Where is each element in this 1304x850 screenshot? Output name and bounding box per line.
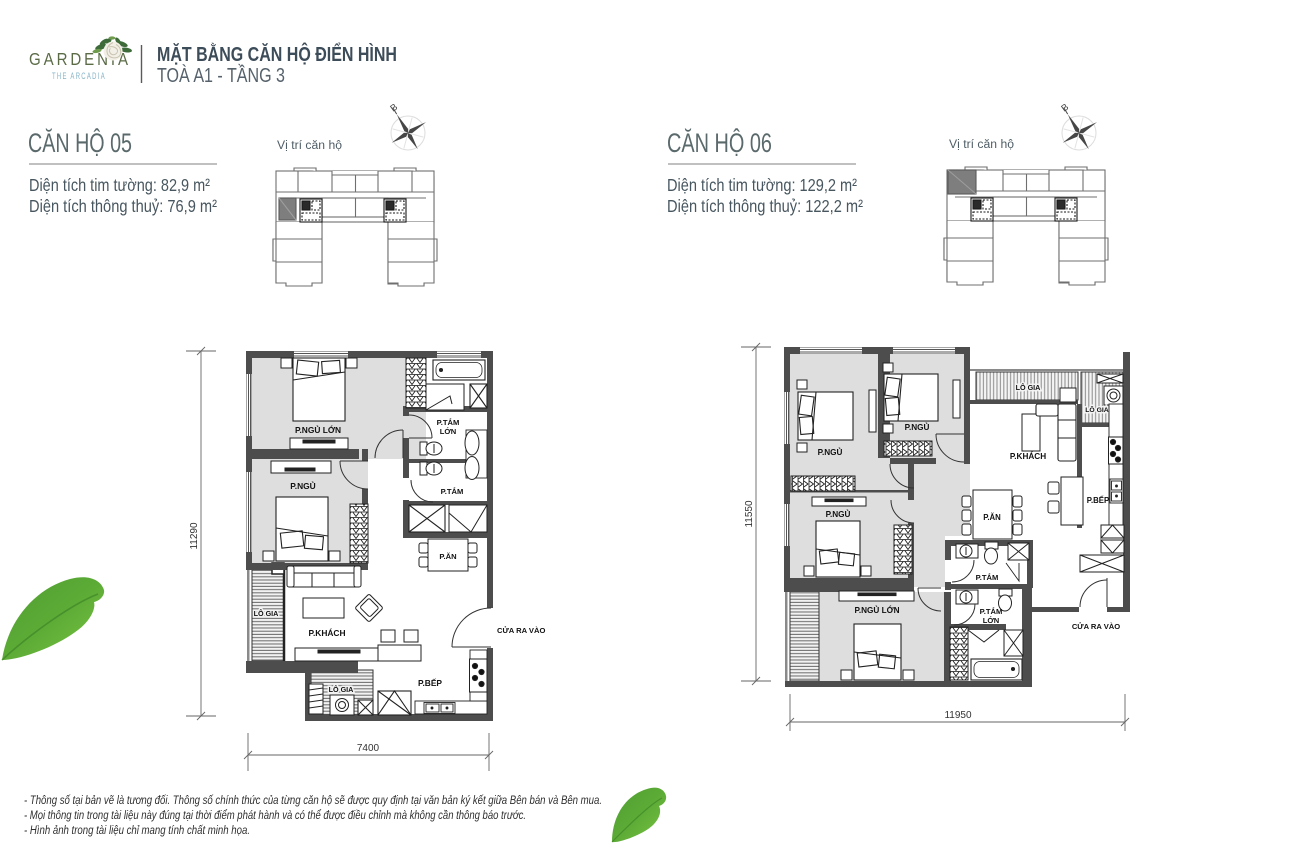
svg-text:P.NGỦ: P.NGỦ	[290, 480, 315, 491]
svg-text:Diện tích thông thuỷ: 122,2 m²: Diện tích thông thuỷ: 122,2 m²	[667, 196, 863, 216]
svg-text:11550: 11550	[744, 500, 755, 528]
svg-text:LÔ GIA: LÔ GIA	[1085, 405, 1109, 414]
svg-text:LỚN: LỚN	[440, 427, 457, 436]
svg-text:LÔ GIA: LÔ GIA	[329, 685, 354, 694]
svg-text:P.TẮM: P.TẮM	[976, 573, 999, 582]
svg-text:CỬA RA VÀO: CỬA RA VÀO	[497, 626, 545, 635]
svg-text:P.KHÁCH: P.KHÁCH	[308, 627, 345, 638]
svg-text:P.KHÁCH: P.KHÁCH	[1010, 451, 1046, 461]
svg-text:P.TẮM: P.TẮM	[437, 418, 460, 427]
svg-text:11950: 11950	[944, 710, 972, 721]
svg-text:LÔ GIA: LÔ GIA	[1016, 383, 1041, 392]
svg-text:MẶT BẰNG CĂN HỘ ĐIỂN HÌNH: MẶT BẰNG CĂN HỘ ĐIỂN HÌNH	[157, 42, 397, 66]
svg-text:THE ARCADIA: THE ARCADIA	[52, 71, 106, 82]
svg-text:P.BẾP: P.BẾP	[1087, 495, 1109, 505]
svg-text:- Hình ảnh trong tài liệu chỉ: - Hình ảnh trong tài liệu chỉ mang tính …	[24, 823, 250, 837]
svg-text:CĂN HỘ 06: CĂN HỘ 06	[667, 128, 772, 158]
svg-text:P.NGỦ: P.NGỦ	[826, 508, 851, 519]
svg-text:LỚN: LỚN	[983, 616, 1000, 625]
svg-text:Diện tích tim tường: 129,2 m²: Diện tích tim tường: 129,2 m²	[667, 175, 857, 195]
svg-text:P.TẮM: P.TẮM	[441, 487, 464, 496]
svg-text:TOÀ A1 - TẦNG 3: TOÀ A1 - TẦNG 3	[157, 64, 285, 87]
svg-text:- Thông số tại bản vẽ là tương: - Thông số tại bản vẽ là tương đối. Thôn…	[24, 793, 602, 807]
svg-text:P.ĂN: P.ĂN	[439, 552, 456, 561]
svg-text:Diện tích thông thuỷ: 76,9 m²: Diện tích thông thuỷ: 76,9 m²	[29, 196, 217, 216]
svg-text:P.NGỦ: P.NGỦ	[818, 446, 843, 457]
svg-text:11290: 11290	[189, 522, 200, 550]
svg-text:LÔ GIA: LÔ GIA	[254, 609, 279, 618]
svg-text:P.NGỦ LỚN: P.NGỦ LỚN	[854, 604, 899, 615]
svg-text:7400: 7400	[357, 743, 380, 754]
svg-text:P.ĂN: P.ĂN	[983, 513, 1001, 522]
svg-text:Vị trí căn hộ: Vị trí căn hộ	[949, 139, 1014, 151]
svg-text:P.NGỦ: P.NGỦ	[905, 421, 930, 432]
svg-text:CỬA RA VÀO: CỬA RA VÀO	[1072, 622, 1120, 631]
svg-text:Diện tích tim tường: 82,9 m²: Diện tích tim tường: 82,9 m²	[29, 175, 210, 195]
svg-text:CĂN HỘ 05: CĂN HỘ 05	[28, 128, 132, 158]
svg-text:P.BẾP: P.BẾP	[418, 678, 442, 688]
svg-text:Vị trí căn hộ: Vị trí căn hộ	[277, 140, 342, 152]
svg-text:- Mọi thông tin trong tài liệu: - Mọi thông tin trong tài liệu này đúng …	[24, 808, 526, 822]
svg-text:P.TẮM: P.TẮM	[980, 607, 1003, 616]
svg-text:P.NGỦ LỚN: P.NGỦ LỚN	[295, 424, 341, 435]
